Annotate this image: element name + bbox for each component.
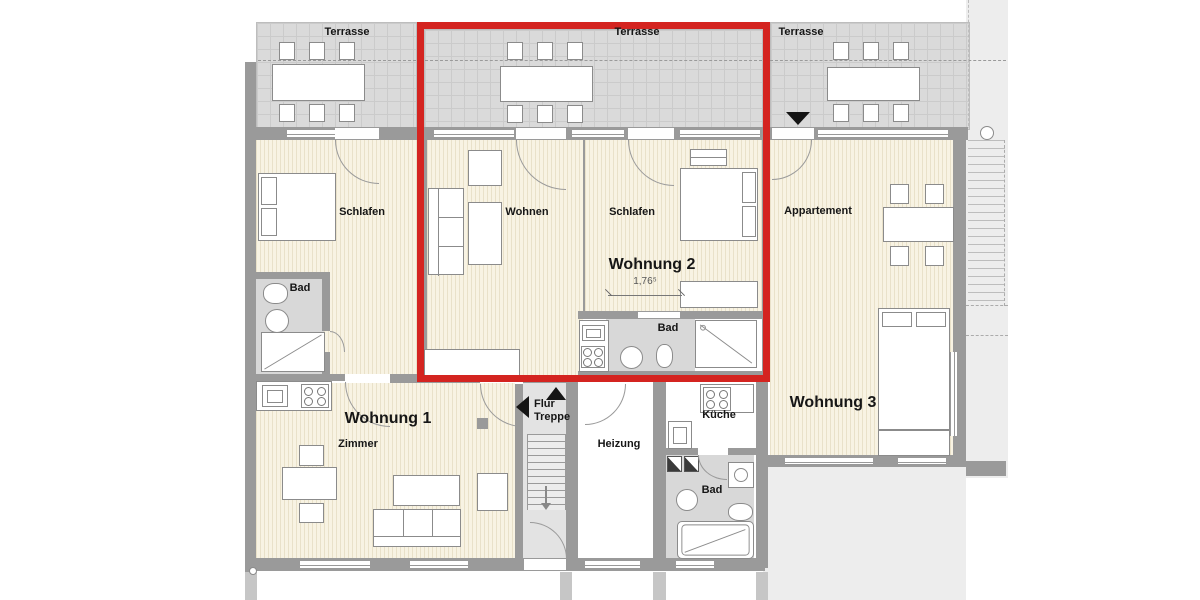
flur-arrow-up-icon <box>546 387 566 400</box>
stair-landing-dash <box>966 305 1008 306</box>
burner <box>304 387 313 396</box>
window <box>287 129 335 138</box>
wall-left <box>245 62 256 572</box>
label-schlafen-w1: Schlafen <box>339 206 385 218</box>
wall-heizung-right <box>653 378 666 559</box>
wall-bad1-top <box>256 272 330 279</box>
terrace-chair <box>863 42 879 60</box>
lower-right-background <box>763 467 966 600</box>
toilet <box>263 283 288 304</box>
label-zimmer-w1: Zimmer <box>338 438 378 450</box>
armchair <box>477 473 508 511</box>
burner <box>317 397 326 406</box>
burner <box>304 397 313 406</box>
survey-point <box>249 567 257 575</box>
window <box>300 560 370 569</box>
terrace-table <box>827 67 920 101</box>
terrace-edge-dashed-line <box>258 60 416 61</box>
burner <box>706 390 715 399</box>
wall-mid-w1-a <box>245 374 345 381</box>
dining-chair <box>925 246 944 266</box>
burner <box>317 387 326 396</box>
terrace-chair <box>339 42 355 60</box>
flur-arrow-left-icon <box>516 396 529 418</box>
label-bad-w3: Bad <box>702 484 723 496</box>
dining-table <box>282 467 337 500</box>
dining-chair <box>890 246 909 266</box>
terrace-chair <box>833 42 849 60</box>
wall-kueche-right <box>756 378 768 568</box>
shower <box>261 332 325 372</box>
washing-machine <box>667 456 682 472</box>
window <box>410 560 468 569</box>
window <box>785 457 873 465</box>
kitchen-sink <box>668 421 692 449</box>
terrace-chair <box>833 104 849 122</box>
label-kueche: Küche <box>702 409 736 421</box>
terrace-edge-dashed-line <box>770 60 1006 61</box>
unit-label-wohnung-1: Wohnung 1 <box>345 410 432 428</box>
terrace-chair <box>309 104 325 122</box>
sink-basin <box>267 390 283 403</box>
terrace-table <box>272 64 365 101</box>
dining-chair <box>299 503 324 523</box>
door-opening-terrace-w1 <box>335 128 379 139</box>
door-opening-terrace-w3 <box>772 128 814 139</box>
pillow <box>261 208 277 236</box>
bathtub-diagonal <box>678 522 753 558</box>
washing-machine <box>684 456 699 472</box>
pillow <box>882 312 912 327</box>
toilet <box>728 503 753 521</box>
red-highlight-outline-wohnung2 <box>417 22 770 382</box>
basin-bowl <box>734 468 748 482</box>
wall-stub-below-a <box>245 572 257 600</box>
corner-basin <box>728 462 754 488</box>
terrace-chair <box>893 104 909 122</box>
wall-stub-below-c <box>653 572 666 600</box>
shower-diagonal <box>262 333 324 371</box>
window <box>676 560 714 569</box>
wall-bad1-right-a <box>322 279 330 331</box>
label-appartement: Appartement <box>784 205 852 217</box>
stair-landing-dash <box>966 335 1008 336</box>
stove <box>703 387 731 411</box>
wall-bad3-top-b <box>728 448 756 455</box>
door-opening-w3-stairs <box>950 352 958 436</box>
label-bad-w1: Bad <box>290 282 311 294</box>
bathtub <box>677 521 754 559</box>
shaft <box>477 418 488 429</box>
wall-stub-below-b <box>560 572 572 600</box>
pillow <box>916 312 946 327</box>
label-flur-treppe: Flur Treppe <box>534 398 570 424</box>
door-opening-schlafen-w1 <box>345 374 390 382</box>
coffee-table <box>393 475 460 506</box>
sofa-back <box>373 536 461 547</box>
dining-chair <box>890 184 909 204</box>
burner <box>719 400 728 409</box>
wall-stub-below-d <box>756 572 768 600</box>
floorplan-canvas: 1,76⁵ Terrasse Terrasse Terrasse Schlafe… <box>0 0 1200 600</box>
door-arc <box>585 384 626 425</box>
terrace-chair <box>279 104 295 122</box>
window <box>898 457 946 465</box>
sofa-divider <box>432 510 433 536</box>
dining-chair <box>925 184 944 204</box>
terrace-chair <box>863 104 879 122</box>
burner <box>706 400 715 409</box>
window <box>585 560 640 569</box>
pillow <box>261 177 277 205</box>
stair-boundary-dash <box>968 0 969 126</box>
stairs-arrow-head <box>541 503 551 510</box>
wall-bad3-top-a <box>666 448 698 455</box>
kitchen-sink <box>262 385 288 407</box>
sink <box>265 309 289 333</box>
label-terrasse-2: Terrasse <box>614 26 659 38</box>
entrance-arrow-down-icon <box>786 112 810 125</box>
stairs-arrow-shaft <box>545 486 547 504</box>
label-terrasse-3: Terrasse <box>778 26 823 38</box>
terrace-chair <box>893 42 909 60</box>
stair-post <box>980 126 994 140</box>
unit-label-wohnung-3: Wohnung 3 <box>790 394 877 412</box>
terrace-chair <box>309 42 325 60</box>
terrace-chair <box>279 42 295 60</box>
sofa-divider <box>403 510 404 536</box>
sink-basin <box>673 427 687 444</box>
sink <box>676 489 698 511</box>
window <box>818 129 948 138</box>
door-opening-corridor <box>524 559 566 570</box>
external-stairs <box>968 140 1005 306</box>
label-terrasse-1: Terrasse <box>324 26 369 38</box>
dining-chair <box>299 445 324 466</box>
wardrobe <box>878 430 950 456</box>
label-heizung: Heizung <box>598 438 641 450</box>
label-treppe: Treppe <box>534 411 570 424</box>
terrace-chair <box>339 104 355 122</box>
sofa <box>373 509 461 547</box>
stove <box>301 384 329 408</box>
wall-stub-right <box>966 461 1006 476</box>
dining-table <box>883 207 954 242</box>
burner <box>719 390 728 399</box>
